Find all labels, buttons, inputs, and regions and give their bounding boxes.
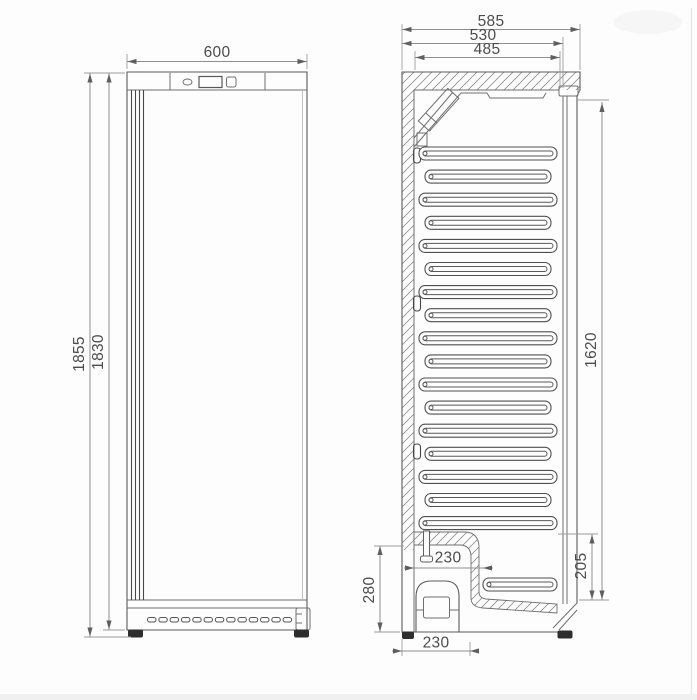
shelf-bar [425,447,551,460]
shelf-bar [425,494,551,507]
side-view: 585 530 485 1620 205 280 [361,13,609,656]
shelf-bar [425,355,551,368]
shelf-bar [425,170,551,183]
dimension-arrowhead [128,59,137,64]
dim-label-compressor-height: 280 [361,577,378,604]
vent-slot [227,618,236,623]
dimension-arrowhead [403,27,412,32]
dimension-arrowhead [393,648,402,653]
dim-front-body-height: 1830 [90,73,125,630]
power-button [183,79,192,85]
shelf-bar [419,332,557,345]
dimension-arrowhead [470,648,479,653]
dimension-arrowhead [87,628,92,637]
dim-label-recess-depth: 230 [435,550,462,567]
dimension-arrowhead [554,41,563,46]
dimension-arrowhead [405,565,414,570]
dimension-arrowhead [551,55,560,60]
dimension-arrowhead [483,565,492,570]
front-control-panel [170,73,265,90]
dimension-arrowhead [377,546,382,555]
dimension-arrowhead [106,621,111,630]
shelf-bar [419,286,557,299]
set-button [227,77,237,87]
shelf-bar [425,401,551,414]
side-door-section [553,96,577,630]
vent-slot [215,618,224,623]
front-view: 600 1855 1830 [71,44,310,637]
shelf-bar [425,216,551,229]
compressor-terminal-box [424,597,450,618]
dim-label-interior-height: 1620 [583,332,600,368]
dim-side-interior-height: 1620 [578,100,609,600]
shelf-bar [419,193,557,206]
shelf-bar [425,309,551,322]
front-cabinet-outline [127,72,307,630]
dim-side-compressor-height: 280 [361,546,404,632]
door-lock [296,608,310,630]
front-door-hinge-lines [132,90,144,600]
evaporator-bracket [417,133,427,146]
dimension-arrowhead [589,591,594,600]
shelf-bar [483,578,557,591]
vent-slot [204,618,213,623]
vent-slot-row [148,618,292,623]
shelf-bar [419,378,557,391]
dimension-arrowhead [416,55,425,60]
vent-slot [238,618,247,623]
shelf-bar [419,239,557,252]
dim-label-front-overall-height: 1855 [71,336,88,372]
vent-slot [148,618,157,623]
dimension-arrowhead [599,591,604,600]
shelf-bar [419,424,557,437]
dimension-arrowhead [377,623,382,632]
shelf-bar [419,470,557,483]
vent-slot [159,618,168,623]
dim-side-recess-depth: 230 [404,550,493,569]
dimension-arrowhead [298,59,307,64]
dimension-arrowhead [106,74,111,83]
vent-slot [193,618,202,623]
vent-slot [283,618,292,623]
insulated-floor-step [414,532,557,613]
front-feet [129,630,309,637]
vent-slot [272,618,281,623]
compressor [416,581,459,632]
drawing-sheet: 600 1855 1830 [0,0,697,700]
vent-slot [181,618,190,623]
vent-slot [249,618,258,623]
vent-slot [170,618,179,623]
dim-side-front-base: 205 [558,534,598,600]
shelf-coil-stack [419,147,557,591]
dim-label-front-body-height: 1830 [90,334,107,370]
shelf-bar [419,147,557,160]
dim-label-interior-depth: 485 [474,41,501,58]
dimension-arrowhead [571,27,580,32]
shelf-bar [419,517,557,530]
dimension-arrowhead [599,103,604,112]
dim-label-base-depth: 230 [423,635,450,652]
dim-label-front-width: 600 [204,44,231,61]
dimension-arrowhead [87,74,92,83]
dimension-drawing: 600 1855 1830 [0,0,697,700]
shelf-bar [425,263,551,276]
dimension-arrowhead [589,535,594,544]
temperature-display [199,77,222,88]
front-plinth [148,608,311,630]
coil-brackets [414,148,421,459]
dimension-arrowhead [403,41,412,46]
dim-label-front-base: 205 [573,553,590,580]
vent-slot [261,618,270,623]
dim-front-width: 600 [127,44,307,69]
